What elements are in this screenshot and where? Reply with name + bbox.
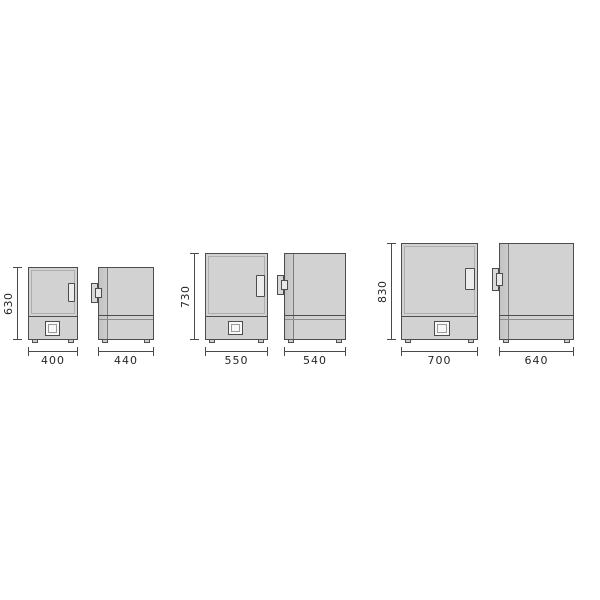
oven-medium-side-view xyxy=(284,253,346,340)
panel-divider-lower xyxy=(500,319,573,320)
door-handle xyxy=(68,283,75,302)
height-dimension-small: 630 xyxy=(17,267,18,340)
foot xyxy=(564,339,570,343)
oven-large-side-view xyxy=(499,243,574,340)
depth-label-small-side: 440 xyxy=(114,354,138,367)
door-handle xyxy=(465,268,475,290)
height-dimension-medium: 730 xyxy=(194,253,195,340)
panel-divider-lower xyxy=(99,319,153,320)
foot xyxy=(102,339,108,343)
foot xyxy=(68,339,74,343)
depth-dimension-medium-side: 540 xyxy=(284,351,346,352)
width-dimension-small-front: 400 xyxy=(28,351,78,352)
door-edge xyxy=(285,254,294,339)
control-display xyxy=(228,321,243,335)
depth-label-medium-side: 540 xyxy=(303,354,327,367)
foot xyxy=(405,339,411,343)
oven-medium-front-view xyxy=(205,253,268,340)
oven-small-side-view xyxy=(98,267,154,340)
foot xyxy=(258,339,264,343)
panel-divider xyxy=(285,315,345,316)
foot xyxy=(503,339,509,343)
control-display xyxy=(434,321,450,336)
door-edge xyxy=(500,244,509,339)
foot xyxy=(209,339,215,343)
panel-divider-lower xyxy=(285,319,345,320)
height-dimension-large: 830 xyxy=(391,243,392,340)
foot xyxy=(144,339,150,343)
foot xyxy=(468,339,474,343)
foot xyxy=(32,339,38,343)
height-label-large: 830 xyxy=(376,243,389,340)
panel-divider xyxy=(206,316,267,317)
panel-divider xyxy=(29,316,77,317)
depth-dimension-small-side: 440 xyxy=(98,351,154,352)
depth-dimension-large-side: 640 xyxy=(499,351,574,352)
panel-divider xyxy=(402,316,477,317)
foot xyxy=(336,339,342,343)
door-handle xyxy=(256,275,265,297)
panel-divider xyxy=(500,315,573,316)
height-label-small: 630 xyxy=(2,267,15,340)
width-label-large-front: 700 xyxy=(428,354,452,367)
oven-large-front-view xyxy=(401,243,478,340)
panel-divider xyxy=(99,315,153,316)
side-handle-grip xyxy=(496,273,503,286)
side-handle-grip xyxy=(281,280,288,290)
side-handle-grip xyxy=(95,288,102,298)
control-display xyxy=(45,321,60,336)
foot xyxy=(288,339,294,343)
width-label-medium-front: 550 xyxy=(225,354,249,367)
dimension-diagram: 630 400 440 730 550 xyxy=(0,0,600,600)
width-dimension-large-front: 700 xyxy=(401,351,478,352)
width-dimension-medium-front: 550 xyxy=(205,351,268,352)
oven-small-front-view xyxy=(28,267,78,340)
height-label-medium: 730 xyxy=(179,253,192,340)
door-edge xyxy=(99,268,108,339)
width-label-small-front: 400 xyxy=(41,354,65,367)
depth-label-large-side: 640 xyxy=(525,354,549,367)
